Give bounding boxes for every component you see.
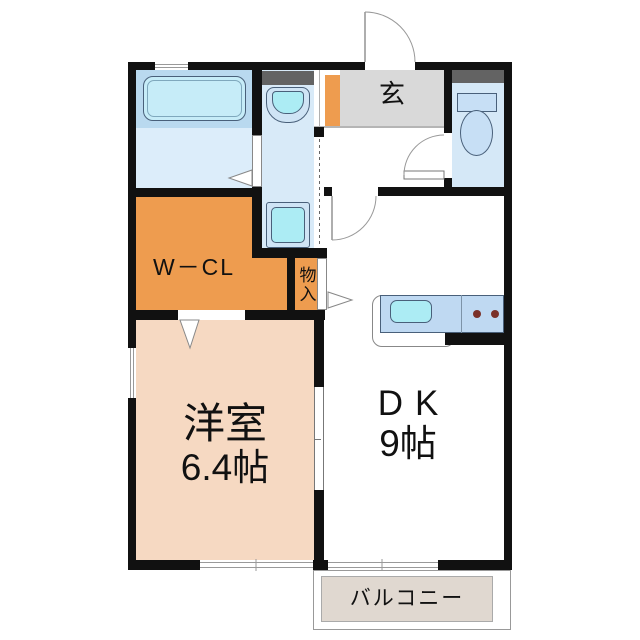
hall-dk-door-swing-arc	[332, 196, 376, 240]
bathroom-folding-door-marker	[229, 170, 252, 186]
western-room-folding-door-marker	[180, 320, 199, 348]
toilet-door-leaf	[404, 171, 444, 179]
toilet-door-swing-arc	[404, 135, 444, 175]
floor-plan: 玄 W－CL 物入 洋室 6.4帖 DK 9帖 バルコニー	[0, 0, 640, 640]
storage-door-swing-marker	[328, 292, 352, 308]
door-symbols-overlay	[0, 0, 640, 640]
entrance-door-swing-arc	[365, 12, 415, 62]
